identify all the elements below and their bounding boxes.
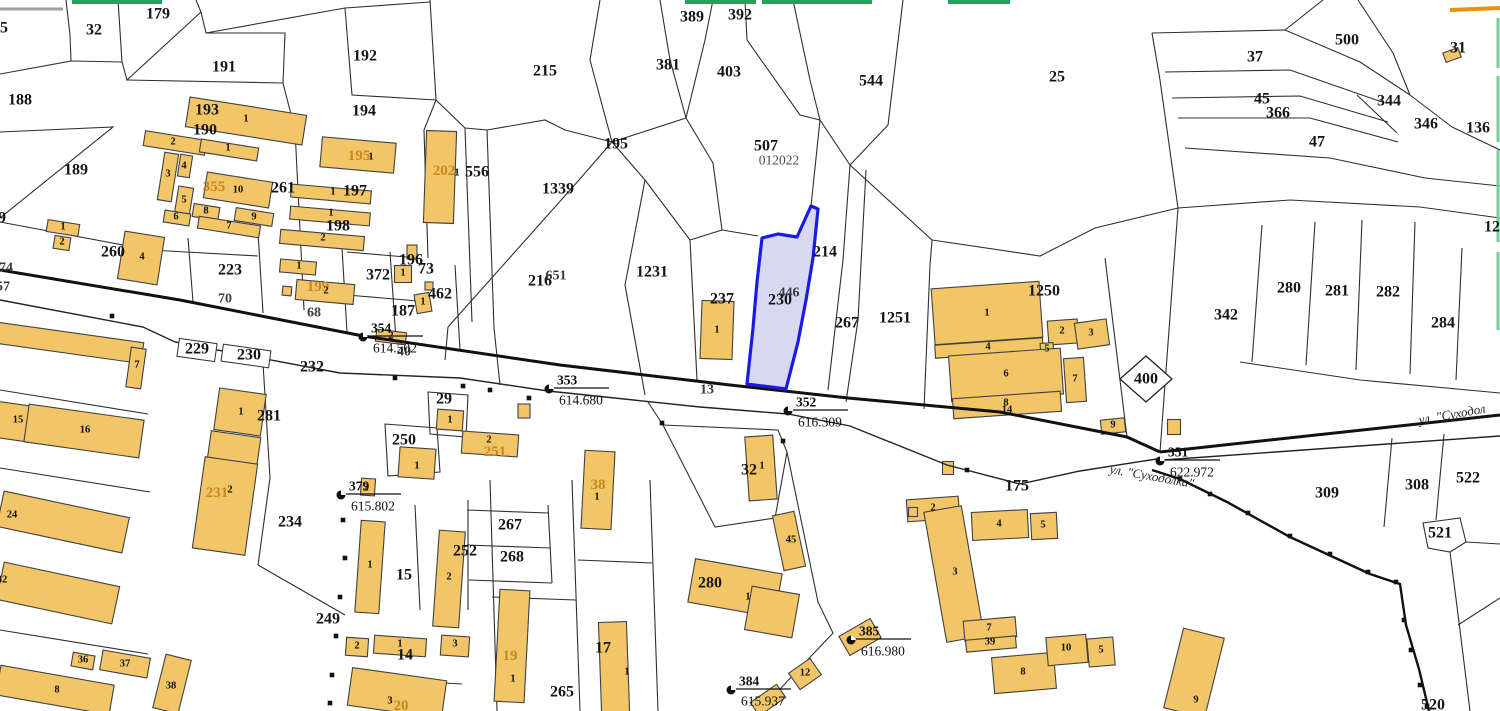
building-number: 8: [54, 685, 59, 696]
building-number: 36: [78, 655, 89, 666]
survey-point-elevation: 615.802: [351, 499, 395, 514]
building: [0, 562, 120, 624]
building-number: 10: [1061, 643, 1072, 654]
building-number: 15: [13, 415, 24, 426]
boundary-tick: [343, 556, 348, 561]
parcel-number: 381: [656, 57, 680, 74]
survey-point-number: 384: [739, 674, 760, 689]
building-number: 7: [134, 360, 139, 371]
parcel-number: 136: [1466, 120, 1490, 137]
building-number: 1: [330, 187, 335, 198]
building: [192, 457, 257, 555]
parcel-boundary: [1252, 225, 1262, 362]
parcel-number: 251: [484, 444, 507, 460]
parcel-boundary: [1456, 248, 1462, 380]
parcel-boundary: [258, 232, 263, 313]
parcel-boundary: [1240, 362, 1500, 393]
boundary-tick: [1418, 683, 1423, 688]
building-number: 38: [166, 681, 177, 692]
parcel-number: 308: [1405, 477, 1429, 494]
building-number: 8: [1020, 667, 1025, 678]
parcel-number: 198: [326, 218, 350, 235]
parcel-number: 74: [0, 261, 13, 276]
parcel-boundary: [1152, 30, 1410, 95]
zone-edge-mark: [1450, 8, 1500, 10]
parcel-number: 1250: [1028, 283, 1060, 300]
parcel-boundary: [188, 238, 193, 302]
parcel-number: 15: [396, 567, 412, 584]
boundary-tick: [1208, 492, 1213, 497]
parcel-number: 234: [278, 514, 302, 531]
parcel-number: 57: [0, 280, 10, 295]
building-number: 1: [745, 592, 750, 603]
parcel-number: 68: [307, 306, 321, 321]
boundary-tick: [341, 518, 346, 523]
street-label: ул. "Суходол: [1415, 401, 1486, 428]
parcel-boundary: [1436, 434, 1444, 520]
parcel-boundary: [0, 0, 71, 74]
building-number: 8: [203, 206, 208, 217]
building-number: 5: [1098, 645, 1103, 656]
building-number: 3: [165, 169, 170, 180]
building-number: 3: [452, 639, 457, 650]
building-number: 14: [1002, 405, 1013, 416]
parcel-boundary: [572, 480, 580, 711]
parcel-number: 230: [237, 347, 261, 364]
parcel-boundary: [722, 230, 758, 236]
building-number: 16: [80, 425, 91, 436]
building-number: 1: [984, 308, 989, 319]
building-number: 7: [986, 623, 991, 634]
building-number: 6: [1003, 369, 1008, 380]
parcel-number: 188: [8, 92, 32, 109]
building-number: 1: [367, 560, 372, 571]
building: [494, 589, 530, 702]
parcel-number: 520: [1421, 697, 1445, 711]
building-number: 1: [238, 407, 243, 418]
parcel-number: 268: [500, 549, 524, 566]
building-number: 9: [251, 212, 256, 223]
parcel-number: 521: [1428, 525, 1452, 542]
parcel-boundary: [745, 0, 820, 120]
parcel-number: 202: [433, 163, 456, 179]
parcel-number: 190: [193, 122, 217, 139]
building-number: 1: [447, 415, 452, 426]
parcel-number: 195: [604, 136, 628, 153]
boundary-tick: [461, 384, 466, 389]
parcel-number: 392: [728, 7, 752, 24]
building-number: 1: [328, 208, 333, 219]
parcel-number: 282: [1376, 284, 1400, 301]
building-number: 5: [1044, 344, 1049, 355]
parcel-boundary: [467, 510, 548, 513]
parcel-boundary: [1410, 222, 1415, 374]
parcel-number: 37: [1247, 49, 1263, 66]
building-number: 2: [323, 286, 328, 297]
parcel-boundary: [612, 142, 690, 240]
boundary-tick: [1288, 534, 1293, 539]
parcel-boundary: [1105, 258, 1127, 437]
parcel-boundary: [1384, 438, 1392, 527]
survey-point-elevation: 614.502: [373, 341, 417, 356]
parcel-number: 522: [1456, 470, 1480, 487]
parcel-boundary: [924, 240, 932, 409]
boundary-tick: [1366, 570, 1371, 575]
boundary-tick: [488, 388, 493, 393]
parcel-number: 189: [64, 162, 88, 179]
parcel-boundary: [932, 208, 1178, 256]
survey-point-353: 353614.680: [545, 373, 610, 408]
parcel-number: 261: [271, 180, 295, 197]
survey-point-number: 379: [349, 479, 370, 494]
parcel-boundary: [469, 580, 552, 583]
parcel-number: 214: [813, 244, 837, 261]
building-number: 24: [7, 510, 18, 521]
parcel-number: 1251: [879, 310, 911, 327]
parcel-number: 446: [779, 286, 800, 301]
parcel-number: 372: [366, 267, 390, 284]
parcel-number: 366: [1266, 105, 1290, 122]
parcel-number: 651: [546, 269, 567, 284]
building-number: 4: [996, 519, 1002, 530]
parcel-number: 25: [1049, 69, 1065, 86]
building-number: 1: [594, 492, 599, 503]
parcel-number: 229: [185, 341, 209, 358]
building-number: 1: [60, 222, 65, 233]
parcel-number: 309: [1315, 485, 1339, 502]
parcel-boundary: [0, 127, 113, 218]
parcel-boundary: [455, 265, 460, 350]
parcel-number: 342: [1214, 307, 1238, 324]
building-number: 4: [985, 342, 991, 353]
parcel-number: 346: [1414, 116, 1438, 133]
parcel-boundary: [1152, 33, 1178, 208]
parcel-number: 12: [1484, 219, 1500, 236]
building-number: 4: [181, 161, 187, 172]
parcel-boundary: [206, 2, 430, 33]
boundary-tick: [660, 421, 665, 426]
parcel-boundary: [1466, 542, 1500, 544]
parcel-number: 232: [300, 359, 324, 376]
building: [1168, 420, 1181, 435]
building-number: 3: [1088, 328, 1093, 339]
building-number: 7: [226, 221, 231, 232]
parcel-number: 20: [394, 698, 409, 711]
road-line: [1163, 436, 1500, 460]
parcel-boundary: [1285, 0, 1323, 30]
parcel-boundary: [1450, 552, 1470, 711]
boundary-tick: [330, 673, 335, 678]
building-number: 1: [368, 152, 373, 163]
parcel-number: 280: [1277, 280, 1301, 297]
parcel-number: 215: [533, 63, 557, 80]
parcel-number: 191: [212, 59, 236, 76]
parcel-boundary: [1178, 118, 1398, 142]
building-number: 1: [714, 325, 719, 336]
parcel-number: 70: [218, 292, 232, 307]
parcel-boundary: [1306, 222, 1315, 365]
building-number: 37: [120, 659, 131, 670]
building-number: 2: [59, 237, 64, 248]
boundary-tick: [1246, 511, 1251, 516]
boundary-tick: [1402, 618, 1407, 623]
parcel-boundary: [0, 630, 148, 654]
parcel-number: 400: [1134, 371, 1158, 388]
parcel-number: 187: [391, 303, 415, 320]
building-number: 9: [1110, 420, 1115, 431]
boundary-tick: [110, 314, 115, 319]
parcel-number: 32: [86, 22, 102, 39]
parcel-boundary: [828, 165, 850, 390]
building-number: 4: [139, 252, 145, 263]
building-number: 3: [952, 567, 957, 578]
parcel-number: 47: [1309, 134, 1325, 151]
parcel-number: 195: [348, 148, 371, 164]
survey-point-elevation: 622.972: [1170, 465, 1214, 480]
building-number: 1: [759, 461, 764, 472]
parcel-number: 403: [717, 64, 741, 81]
parcel-number: 462: [428, 286, 452, 303]
building: [745, 586, 800, 638]
building: [0, 322, 144, 363]
parcel-boundary: [1358, 0, 1410, 95]
building-number: 6: [173, 212, 178, 223]
parcel-number: 280: [698, 575, 722, 592]
parcel-number: 237: [710, 291, 734, 308]
parcel-boundary: [650, 480, 658, 711]
parcel-number: 32: [741, 462, 757, 479]
building-number: 5: [1040, 520, 1045, 531]
building-number: 12: [800, 668, 811, 679]
parcel-number: 175: [1005, 478, 1029, 495]
building-number: 1: [296, 261, 301, 272]
building-number: 5: [181, 195, 186, 206]
parcel-number: 1339: [542, 181, 574, 198]
boundary-tick: [527, 396, 532, 401]
boundary-tick: [334, 634, 339, 639]
parcel-boundary: [430, 0, 436, 100]
parcel-number: 1231: [636, 264, 668, 281]
parcel-boundary: [846, 170, 866, 402]
building-number: 32: [0, 575, 7, 586]
parcel-number: 179: [146, 6, 170, 23]
parcel-boundary: [548, 505, 552, 583]
building-number: 9: [1193, 695, 1198, 706]
boundary-tick: [965, 468, 970, 473]
building: [282, 286, 292, 296]
survey-point-elevation: 616.309: [798, 415, 842, 430]
building-number: 1: [454, 168, 459, 179]
parcel-number: 5: [0, 20, 8, 37]
parcel-number: 13: [700, 383, 714, 398]
parcel-boundary: [258, 565, 345, 615]
survey-point-352: 352616.309: [784, 395, 849, 430]
parcel-boundary: [1185, 148, 1500, 186]
parcel-number: 73: [418, 261, 434, 278]
building: [518, 404, 530, 418]
boundary-tick: [1394, 580, 1399, 585]
survey-point-number: 385: [859, 624, 880, 639]
building-number: 10: [233, 185, 244, 196]
building-number: 2: [227, 485, 232, 496]
parcel-number: 267: [835, 315, 859, 332]
building-number: 1: [400, 268, 405, 279]
parcel-number: 012022: [759, 153, 800, 168]
parcel-number: 281: [1325, 283, 1349, 300]
parcel-boundary: [415, 505, 420, 610]
boundary-tick: [1328, 552, 1333, 557]
survey-point-number: 353: [557, 373, 578, 388]
parcel-boundary: [625, 180, 645, 395]
parcel-number: 344: [1377, 93, 1401, 110]
parcel-number: 249: [316, 611, 340, 628]
building-number: 2: [446, 572, 451, 583]
parcel-number: 223: [218, 262, 242, 279]
parcel-number: 197: [343, 183, 367, 200]
building-number: 45: [786, 535, 797, 546]
parcel-boundary: [0, 468, 150, 492]
parcel-number: 31: [1450, 40, 1466, 57]
building: [0, 491, 129, 553]
survey-point-number: 354: [371, 321, 392, 336]
parcel-number: 544: [859, 73, 883, 90]
building-number: 1: [414, 461, 419, 472]
parcel-number: 250: [392, 432, 416, 449]
building-number: 1: [397, 639, 402, 650]
building-number: 1: [243, 114, 248, 125]
parcel-boundary: [590, 0, 612, 142]
boundary-tick: [338, 595, 343, 600]
building-number: 39: [985, 637, 996, 648]
parcel-number: 260: [101, 244, 125, 261]
parcel-number: 192: [353, 48, 377, 65]
parcel-boundary: [1356, 220, 1362, 370]
boundary-tick: [781, 439, 786, 444]
building-number: 2: [1059, 326, 1064, 337]
parcel-boundary: [690, 240, 697, 380]
parcel-boundary: [578, 560, 652, 563]
parcel-number: 281: [257, 408, 281, 425]
survey-point-number: 351: [1168, 445, 1189, 460]
survey-point-elevation: 616.980: [861, 644, 905, 659]
cadastral-map[interactable]: 5321791881899191192193190194261197198556…: [0, 0, 1500, 711]
building-number: 1: [225, 143, 230, 154]
parcel-number: 265: [550, 684, 574, 701]
building-number: 3: [387, 696, 392, 707]
building-number: 2: [930, 503, 935, 514]
survey-point-number: 352: [796, 395, 817, 410]
parcel-number: 500: [1335, 32, 1359, 49]
building-number: 2: [354, 641, 359, 652]
building-number: 2: [170, 137, 175, 148]
building-number: 2: [320, 233, 325, 244]
parcel-number: 17: [595, 640, 611, 657]
parcel-number: 19: [503, 648, 518, 664]
building-number: 1: [510, 674, 515, 685]
building-number: 1: [624, 667, 629, 678]
building-number: 2: [486, 435, 491, 446]
parcel-number: 29: [436, 391, 452, 408]
boundary-tick: [393, 376, 398, 381]
building-number: 7: [1072, 374, 1077, 385]
parcel-number: 9: [0, 210, 6, 227]
survey-point-elevation: 615.937: [741, 694, 785, 709]
parcel-boundary: [487, 120, 565, 130]
parcel-number: 355: [203, 179, 226, 195]
parcel-boundary: [1458, 598, 1500, 625]
boundary-tick: [1409, 648, 1414, 653]
parcel-number: 556: [465, 164, 489, 181]
parcel-boundary: [1178, 200, 1500, 218]
building: [909, 508, 918, 517]
parcel-number: 231: [206, 485, 229, 501]
parcel-boundary: [793, 0, 820, 206]
parcel-boundary: [1160, 208, 1178, 452]
parcel-number: 252: [453, 543, 477, 560]
survey-point-elevation: 614.680: [559, 393, 603, 408]
parcel-number: 267: [498, 517, 522, 534]
parcel-boundary: [686, 118, 722, 240]
parcel-number: 284: [1431, 315, 1455, 332]
parcel-number: 193: [195, 102, 219, 119]
parcel-number: 194: [352, 103, 376, 120]
parcel-number: 389: [680, 9, 704, 26]
building-number: 1: [420, 297, 425, 308]
boundary-tick: [328, 701, 333, 706]
